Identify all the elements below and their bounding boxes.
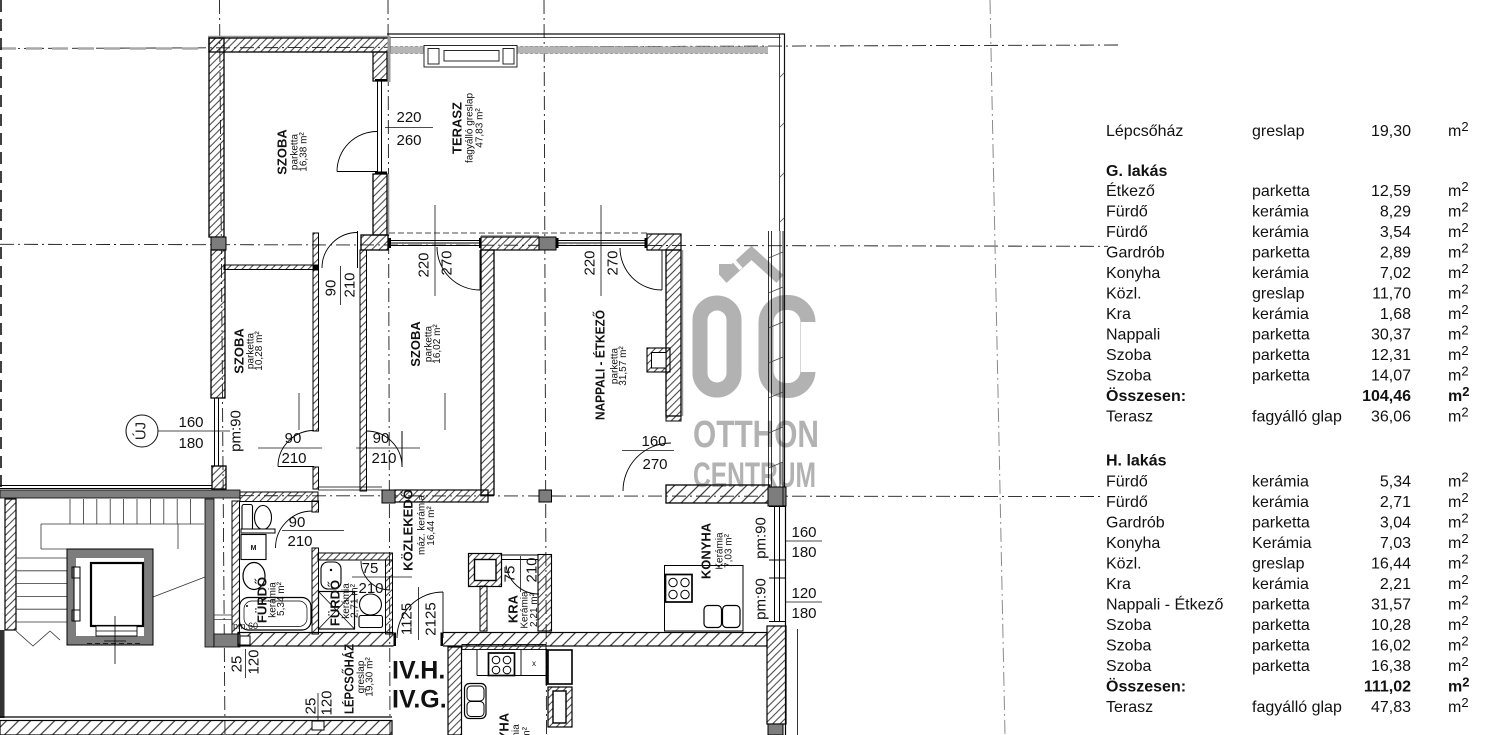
svg-text:kerámia: kerámia (1252, 576, 1309, 593)
svg-text:fagyálló glap: fagyálló glap (1252, 409, 1342, 426)
svg-text:parketta: parketta (1252, 597, 1310, 614)
svg-text:16,02 m²: 16,02 m² (432, 324, 443, 364)
svg-text:8,29: 8,29 (1380, 204, 1411, 221)
svg-text:Étkező: Étkező (1106, 181, 1155, 200)
svg-text:greslap: greslap (1252, 556, 1305, 573)
svg-text:16,44: 16,44 (1371, 556, 1411, 573)
svg-text:1,68: 1,68 (1380, 306, 1411, 323)
svg-text:7,02: 7,02 (1380, 265, 1411, 282)
svg-text:47,83: 47,83 (1371, 699, 1411, 716)
svg-text:25: 25 (229, 656, 246, 673)
svg-text:19,30 m²: 19,30 m² (365, 657, 376, 697)
svg-text:210: 210 (281, 450, 306, 467)
svg-text:3,54: 3,54 (1380, 224, 1411, 241)
svg-text:KONYHA: KONYHA (699, 522, 714, 579)
svg-text:Kerámia: Kerámia (1252, 535, 1312, 552)
svg-text:parketta: parketta (1252, 183, 1310, 200)
svg-text:Szoba: Szoba (1106, 638, 1151, 655)
svg-text:SZOBA: SZOBA (232, 328, 247, 374)
svg-text:47,83 m²: 47,83 m² (475, 108, 486, 148)
svg-text:Terasz: Terasz (1106, 699, 1153, 716)
svg-text:75: 75 (502, 566, 519, 583)
svg-text:fagyálló glap: fagyálló glap (1252, 699, 1342, 716)
svg-text:25: 25 (303, 698, 320, 715)
svg-text:7,03 m²: 7,03 m² (724, 533, 735, 568)
svg-text:Fürdő: Fürdő (1106, 474, 1148, 491)
svg-text:Szoba: Szoba (1106, 368, 1151, 385)
svg-text:90: 90 (373, 430, 390, 447)
svg-text:IV.G.: IV.G. (392, 686, 447, 714)
svg-text:Kra: Kra (1106, 576, 1131, 593)
svg-text:10,28 m²: 10,28 m² (254, 331, 265, 371)
svg-text:H. lakás: H. lakás (1106, 453, 1167, 470)
svg-text:kerámia: kerámia (1252, 204, 1309, 221)
svg-text:Szoba: Szoba (1106, 617, 1151, 634)
svg-text:270: 270 (605, 250, 622, 275)
svg-text:3,04: 3,04 (1380, 515, 1411, 532)
svg-text:TERASZ: TERASZ (450, 102, 465, 154)
svg-text:2125: 2125 (423, 602, 440, 635)
svg-text:SZOBA: SZOBA (408, 321, 423, 367)
svg-text:parketta: parketta (1252, 245, 1310, 262)
svg-text:Terasz: Terasz (1106, 409, 1153, 426)
svg-text:2,21 m²: 2,21 m² (529, 592, 540, 627)
svg-text:pm:60: pm:60 (233, 621, 258, 631)
svg-text:Nappali: Nappali (1106, 327, 1160, 344)
svg-text:90: 90 (285, 430, 302, 447)
svg-text:KONYHA: KONYHA (497, 712, 512, 735)
svg-text:IV.H.: IV.H. (392, 657, 445, 685)
svg-text:KRA: KRA (506, 594, 521, 623)
svg-text:Fürdő: Fürdő (1106, 224, 1148, 241)
svg-text:kerámia: kerámia (511, 724, 522, 735)
svg-text:SZOBA: SZOBA (275, 129, 290, 175)
svg-text:kerámia: kerámia (1252, 306, 1309, 323)
svg-text:210: 210 (524, 557, 541, 582)
svg-text:Fürdő: Fürdő (1106, 494, 1148, 511)
svg-text:pm:90: pm:90 (228, 410, 245, 452)
svg-text:14,07: 14,07 (1371, 368, 1411, 385)
svg-text:Összesen:: Összesen: (1106, 386, 1186, 405)
svg-text:31,57 m²: 31,57 m² (618, 346, 629, 386)
svg-text:kerámia: kerámia (1252, 494, 1309, 511)
svg-text:120: 120 (319, 690, 336, 715)
svg-text:90: 90 (323, 280, 340, 297)
svg-text:Összesen:: Összesen: (1106, 677, 1186, 696)
svg-text:NAPPALI - ÉTKEZŐ: NAPPALI - ÉTKEZŐ (593, 310, 608, 420)
svg-text:OTTHON: OTTHON (693, 414, 819, 456)
svg-text:180: 180 (791, 605, 816, 622)
svg-text:111,02: 111,02 (1364, 679, 1411, 696)
svg-text:Közl.: Közl. (1106, 286, 1142, 303)
svg-text:parketta: parketta (1252, 515, 1310, 532)
svg-text:210: 210 (371, 450, 396, 467)
svg-text:kerámia: kerámia (1252, 224, 1309, 241)
svg-text:220: 220 (582, 250, 599, 275)
svg-text:Nappali - Étkező: Nappali - Étkező (1106, 595, 1223, 614)
svg-text:10,28: 10,28 (1371, 617, 1411, 634)
svg-text:parketta: parketta (1252, 327, 1310, 344)
svg-text:180: 180 (178, 435, 203, 452)
svg-text:104,46: 104,46 (1362, 388, 1411, 405)
svg-text:260: 260 (396, 132, 421, 149)
svg-text:7,02 m²: 7,02 m² (522, 726, 533, 735)
svg-text:greslap: greslap (1252, 286, 1305, 303)
svg-text:270: 270 (439, 250, 456, 275)
svg-text:19,30: 19,30 (1371, 123, 1411, 140)
svg-text:parketta: parketta (1252, 638, 1310, 655)
svg-text:pm:90: pm:90 (753, 578, 770, 620)
svg-text:270: 270 (642, 456, 667, 473)
svg-text:5,34: 5,34 (1380, 474, 1411, 491)
svg-text:Fürdő: Fürdő (1106, 204, 1148, 221)
svg-text:7,03: 7,03 (1380, 535, 1411, 552)
svg-text:11,70: 11,70 (1372, 286, 1411, 303)
svg-text:12,59: 12,59 (1371, 183, 1411, 200)
svg-text:90: 90 (289, 514, 306, 531)
svg-text:KÖZLEKEDŐ: KÖZLEKEDŐ (401, 489, 416, 571)
svg-text:120: 120 (246, 649, 263, 674)
svg-text:Konyha: Konyha (1106, 265, 1160, 282)
svg-text:31,57: 31,57 (1371, 597, 1411, 614)
svg-text:Konyha: Konyha (1106, 535, 1160, 552)
svg-text:160: 160 (791, 524, 816, 541)
svg-text:210: 210 (342, 272, 359, 297)
svg-text:Szoba: Szoba (1106, 658, 1151, 675)
svg-text:x: x (532, 659, 536, 668)
svg-text:kerámia: kerámia (1252, 474, 1309, 491)
svg-text:Gardrób: Gardrób (1106, 515, 1165, 532)
svg-text:Közl.: Közl. (1106, 556, 1142, 573)
svg-text:210: 210 (358, 580, 383, 597)
svg-text:180: 180 (791, 544, 816, 561)
svg-text:220: 220 (396, 109, 421, 126)
svg-text:36,06: 36,06 (1371, 409, 1411, 426)
svg-text:5,34 m²: 5,34 m² (276, 581, 287, 616)
svg-text:30,37: 30,37 (1371, 327, 1411, 344)
svg-text:120: 120 (791, 585, 816, 602)
svg-text:Szoba: Szoba (1106, 347, 1151, 364)
svg-text:2,89: 2,89 (1380, 245, 1411, 262)
svg-text:parketta: parketta (1252, 658, 1310, 675)
svg-text:75: 75 (362, 560, 379, 577)
svg-text:2,21: 2,21 (1380, 576, 1411, 593)
svg-text:kerámia: kerámia (1252, 265, 1309, 282)
svg-text:160: 160 (178, 414, 203, 431)
svg-text:16,44 m²: 16,44 m² (426, 506, 437, 546)
svg-text:Lépcsőház: Lépcsőház (1106, 123, 1183, 140)
svg-text:M: M (251, 545, 257, 552)
svg-text:LÉPCSŐHÁZ: LÉPCSŐHÁZ (342, 644, 357, 714)
svg-text:220: 220 (416, 252, 433, 277)
svg-text:Kra: Kra (1106, 306, 1131, 323)
svg-text:16,38 m²: 16,38 m² (299, 132, 310, 172)
svg-text:12,31: 12,31 (1371, 347, 1411, 364)
svg-text:greslap: greslap (1252, 123, 1305, 140)
svg-text:parketta: parketta (1252, 617, 1310, 634)
svg-text:ÚJ: ÚJ (133, 422, 150, 440)
svg-text:210: 210 (287, 533, 312, 550)
svg-text:2,71: 2,71 (1380, 494, 1411, 511)
svg-text:160: 160 (641, 433, 666, 450)
svg-text:parketta: parketta (1252, 368, 1310, 385)
svg-text:Gardrób: Gardrób (1106, 245, 1165, 262)
svg-text:pm:90: pm:90 (753, 517, 770, 559)
svg-text:16,02: 16,02 (1371, 638, 1411, 655)
svg-text:16,38: 16,38 (1371, 658, 1411, 675)
svg-text:G. lakás: G. lakás (1106, 163, 1167, 180)
svg-text:parketta: parketta (1252, 347, 1310, 364)
